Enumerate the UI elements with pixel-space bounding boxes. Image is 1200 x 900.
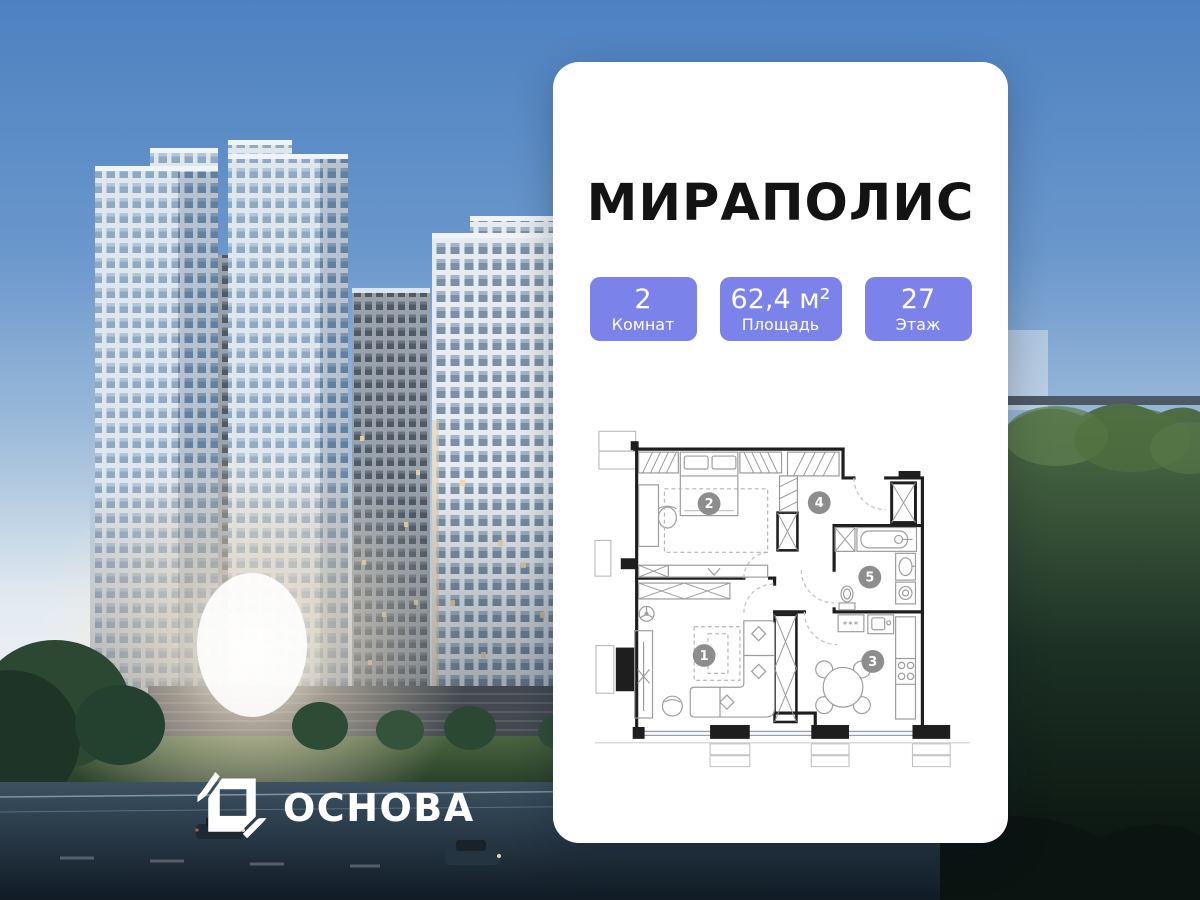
room-badge-1: 1 bbox=[693, 644, 716, 667]
washing-machine bbox=[896, 582, 916, 604]
svg-text:5: 5 bbox=[865, 571, 874, 586]
stats-row: 2 Комнат 62,4 м² Площадь 27 Этаж bbox=[553, 277, 1008, 341]
stat-rooms-label: Комнат bbox=[612, 315, 675, 334]
osnova-cube-icon bbox=[196, 772, 268, 844]
room-badge-2: 2 bbox=[698, 492, 721, 515]
ceiling-fan bbox=[639, 606, 654, 621]
counter-label: *** bbox=[843, 621, 859, 631]
room-badge-3: 3 bbox=[861, 650, 884, 673]
floor-plan: *** 1 2 3 4 5 bbox=[593, 418, 975, 770]
pouf bbox=[662, 696, 682, 716]
logo-text: ОСНОВА bbox=[283, 786, 475, 830]
bath-sink bbox=[896, 553, 916, 580]
overpass bbox=[1002, 396, 1200, 405]
developer-logo[interactable]: ОСНОВА bbox=[196, 772, 475, 844]
dresser bbox=[668, 565, 767, 577]
sofa bbox=[690, 621, 774, 717]
apartment-card[interactable]: МИРАПОЛИС 2 Комнат 62,4 м² Площадь 27 Эт… bbox=[553, 62, 1008, 843]
svg-text:3: 3 bbox=[868, 655, 877, 670]
project-title: МИРАПОЛИС bbox=[553, 174, 1008, 233]
svg-text:4: 4 bbox=[815, 496, 824, 511]
promo-banner: ОСНОВА МИРАПОЛИС 2 Комнат 62,4 м² Площад… bbox=[0, 0, 1200, 900]
room-badges: 1 2 3 4 5 bbox=[693, 491, 884, 673]
floor-plan-svg: *** 1 2 3 4 5 bbox=[593, 418, 975, 770]
stat-floor-label: Этаж bbox=[896, 315, 941, 334]
stat-area-label: Площадь bbox=[742, 315, 819, 334]
stat-floor-value: 27 bbox=[901, 285, 935, 315]
svg-text:2: 2 bbox=[705, 497, 714, 512]
stat-floor: 27 Этаж bbox=[865, 277, 972, 341]
windows bbox=[637, 731, 923, 735]
svg-text:1: 1 bbox=[700, 649, 709, 664]
toilet bbox=[839, 586, 855, 610]
stat-rooms-value: 2 bbox=[634, 285, 651, 315]
stat-rooms: 2 Комнат bbox=[590, 277, 697, 341]
stat-area: 62,4 м² Площадь bbox=[720, 277, 842, 341]
stove bbox=[898, 662, 913, 679]
bathtub bbox=[857, 528, 917, 552]
stat-area-value: 62,4 м² bbox=[731, 285, 831, 315]
room-badge-5: 5 bbox=[858, 566, 881, 589]
desk-and-chair bbox=[639, 485, 677, 547]
dining-table bbox=[816, 661, 871, 714]
room-badge-4: 4 bbox=[808, 491, 831, 514]
